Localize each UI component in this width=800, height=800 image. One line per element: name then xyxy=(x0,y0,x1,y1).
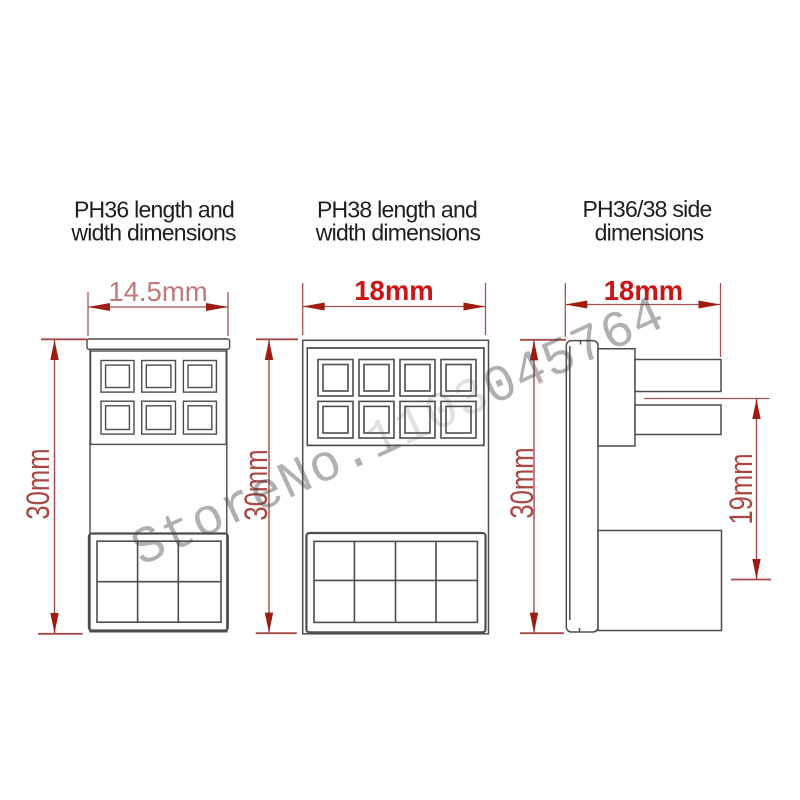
svg-text:30mm: 30mm xyxy=(20,448,57,519)
svg-text:14.5mm: 14.5mm xyxy=(108,276,207,307)
svg-text:width dimensions: width dimensions xyxy=(315,220,481,246)
svg-text:18mm: 18mm xyxy=(354,275,434,306)
svg-text:19mm: 19mm xyxy=(723,453,760,524)
svg-text:PH36/38 side: PH36/38 side xyxy=(582,196,711,222)
svg-text:30mm: 30mm xyxy=(504,447,541,518)
svg-text:width dimensions: width dimensions xyxy=(70,220,236,246)
svg-text:dimensions: dimensions xyxy=(595,220,704,246)
